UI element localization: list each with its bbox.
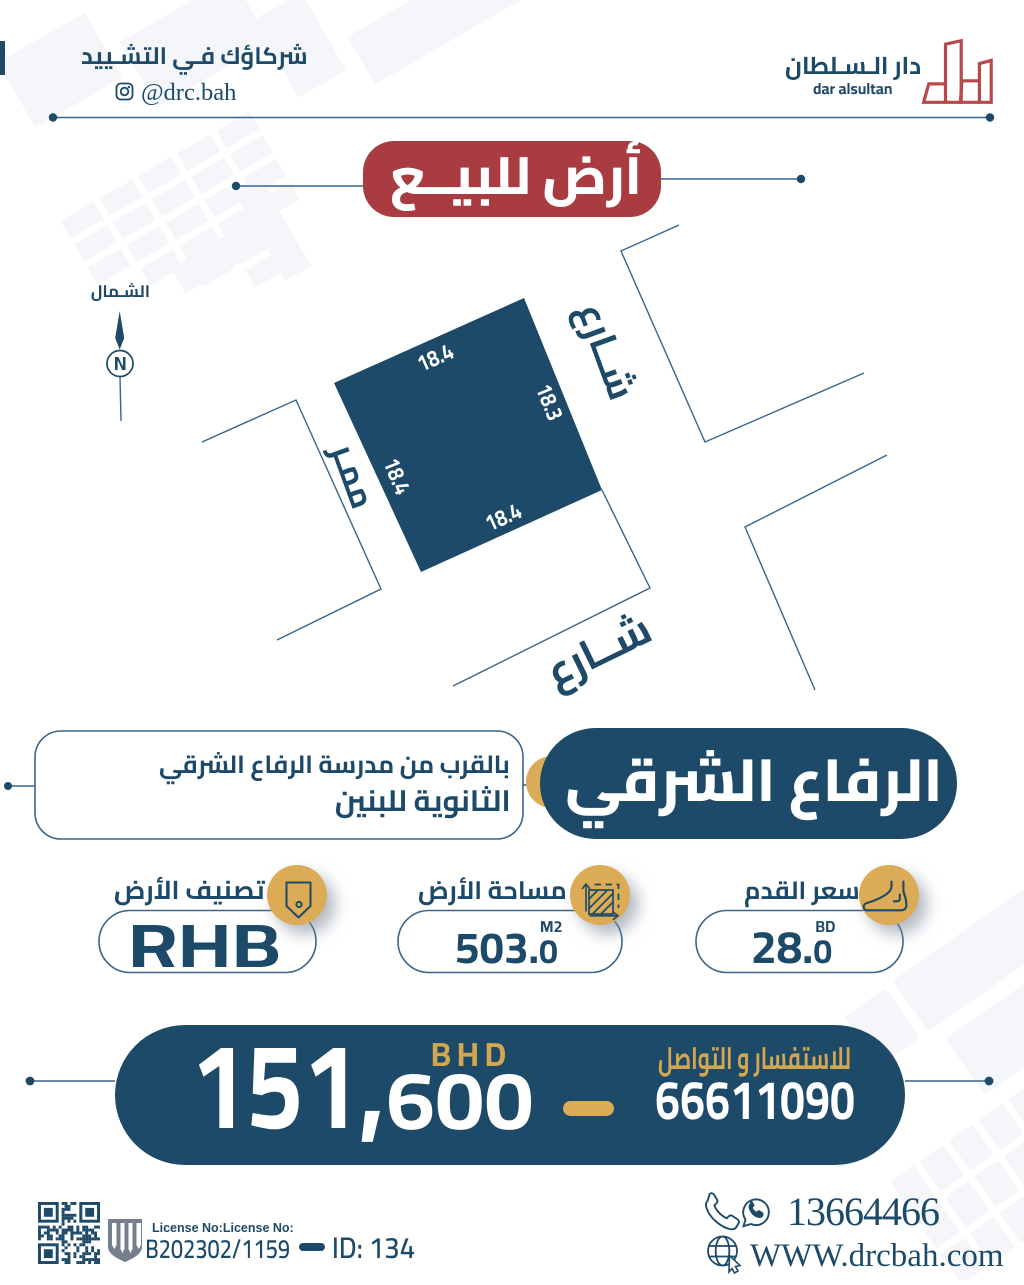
svg-text:13664466: 13664466: [787, 1189, 939, 1234]
svg-text:WWW.drcbah.com: WWW.drcbah.com: [750, 1238, 1004, 1274]
svg-text:License No:License No:: License No:License No:: [152, 1221, 294, 1235]
svg-text:@drc.bah: @drc.bah: [141, 79, 236, 106]
